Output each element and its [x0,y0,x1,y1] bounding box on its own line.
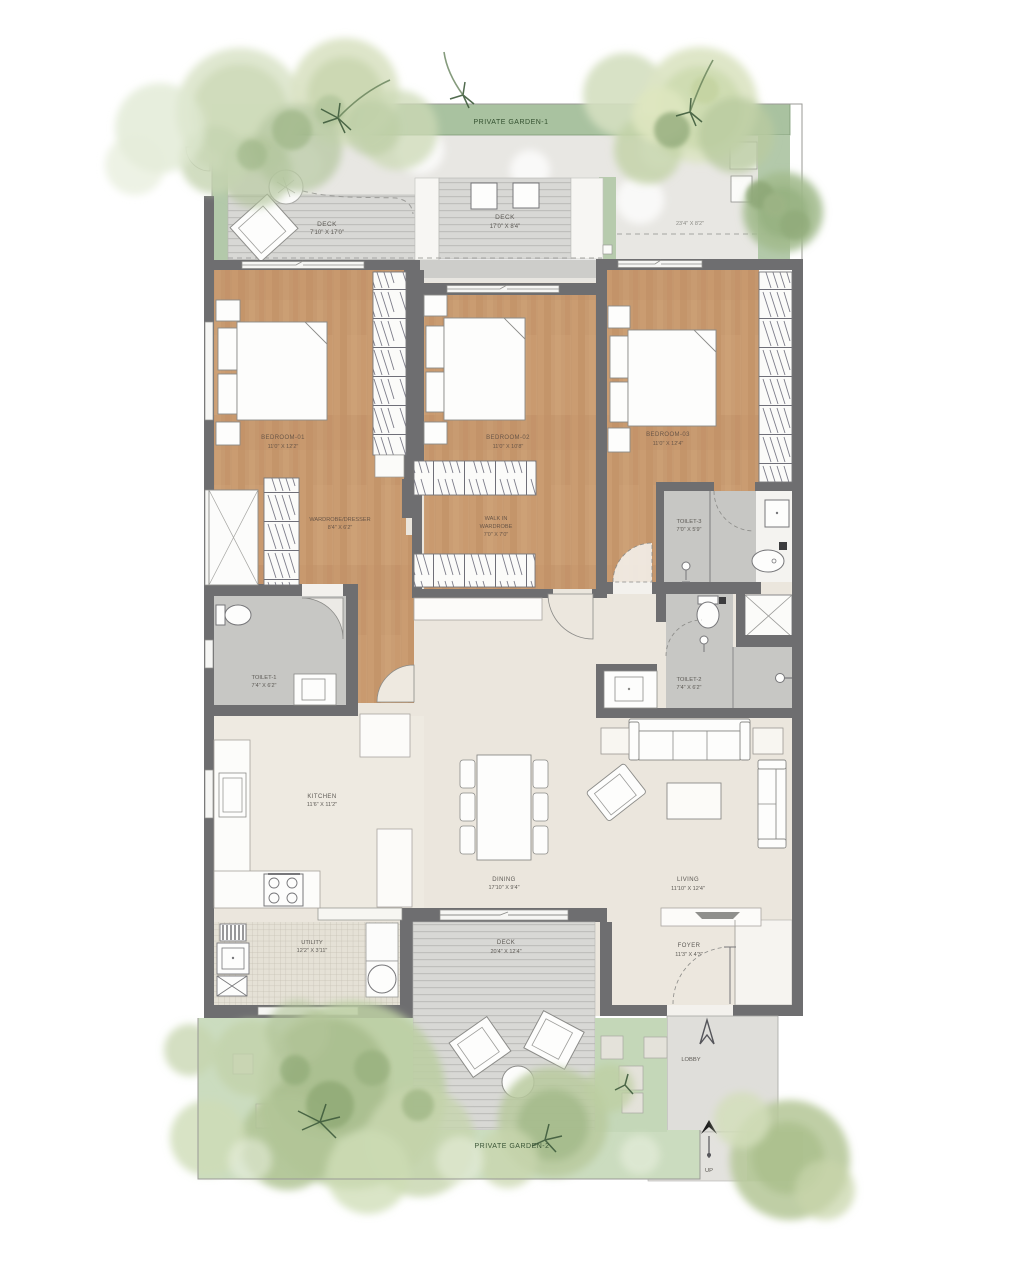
svg-text:7'10" X 17'0": 7'10" X 17'0" [310,230,344,236]
svg-text:UP: UP [705,1168,713,1174]
svg-text:11'3" X 4'3": 11'3" X 4'3" [675,952,703,958]
svg-text:7'4" X 6'2": 7'4" X 6'2" [252,683,277,689]
svg-text:8'4" X 6'2": 8'4" X 6'2" [328,525,353,531]
svg-text:TOILET-2: TOILET-2 [676,677,701,683]
svg-text:DECK: DECK [495,214,515,221]
svg-text:PRIVATE GARDEN-1: PRIVATE GARDEN-1 [473,119,548,126]
svg-text:20'4" X 12'4": 20'4" X 12'4" [490,949,521,955]
svg-text:WALK IN: WALK IN [485,516,508,522]
svg-text:11'0" X 12'4": 11'0" X 12'4" [653,441,684,447]
svg-text:DINING: DINING [492,877,515,883]
svg-text:7'0" X 7'0": 7'0" X 7'0" [484,532,509,538]
svg-text:11'0" X 10'8": 11'0" X 10'8" [493,444,524,450]
svg-text:TOILET-3: TOILET-3 [676,519,701,525]
svg-text:17'0" X 8'4": 17'0" X 8'4" [490,224,521,230]
svg-text:17'10" X 9'4": 17'10" X 9'4" [488,885,519,891]
svg-text:KITCHEN: KITCHEN [307,794,336,800]
svg-text:TOILET-1: TOILET-1 [251,675,276,681]
svg-text:23'4" X 8'2": 23'4" X 8'2" [676,221,704,227]
svg-text:BEDROOM-01: BEDROOM-01 [261,435,305,441]
svg-text:7'4" X 6'2": 7'4" X 6'2" [677,685,702,691]
svg-text:BEDROOM-03: BEDROOM-03 [646,432,690,438]
svg-text:11'6" X 11'2": 11'6" X 11'2" [307,802,337,808]
svg-text:PRIVATE GARDEN-2: PRIVATE GARDEN-2 [474,1143,549,1150]
svg-text:11'0" X 12'2": 11'0" X 12'2" [268,444,299,450]
svg-text:11'10" X 12'4": 11'10" X 12'4" [671,886,705,892]
svg-text:7'0" X 5'9": 7'0" X 5'9" [677,527,702,533]
svg-text:WARDROBE/DRESSER: WARDROBE/DRESSER [309,517,370,523]
svg-text:DECK: DECK [317,221,337,228]
svg-text:12'2" X 3'11": 12'2" X 3'11" [297,948,328,954]
svg-text:LIVING: LIVING [677,877,699,883]
svg-text:FOYER: FOYER [678,943,701,949]
svg-text:UTILITY: UTILITY [301,940,323,946]
svg-text:WARDROBE: WARDROBE [480,524,513,530]
svg-text:BEDROOM-02: BEDROOM-02 [486,435,530,441]
svg-text:LOBBY: LOBBY [681,1057,700,1063]
svg-text:DECK: DECK [497,940,515,946]
